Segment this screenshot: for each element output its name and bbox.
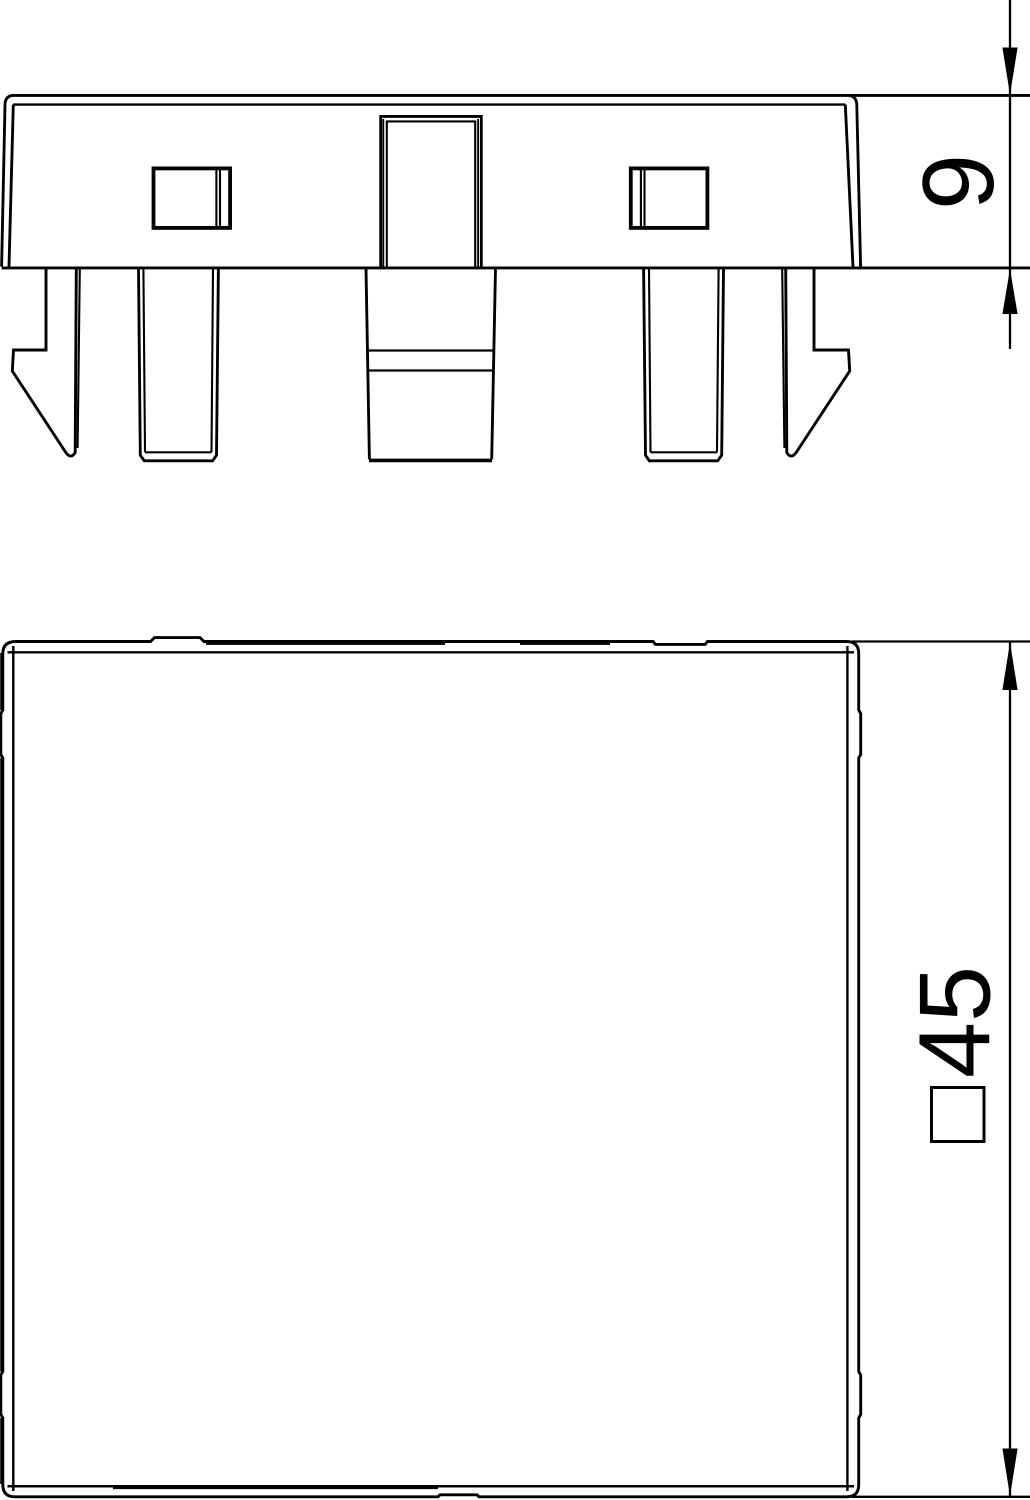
svg-text:45: 45 — [900, 966, 1012, 1078]
svg-text:9: 9 — [903, 154, 1015, 210]
